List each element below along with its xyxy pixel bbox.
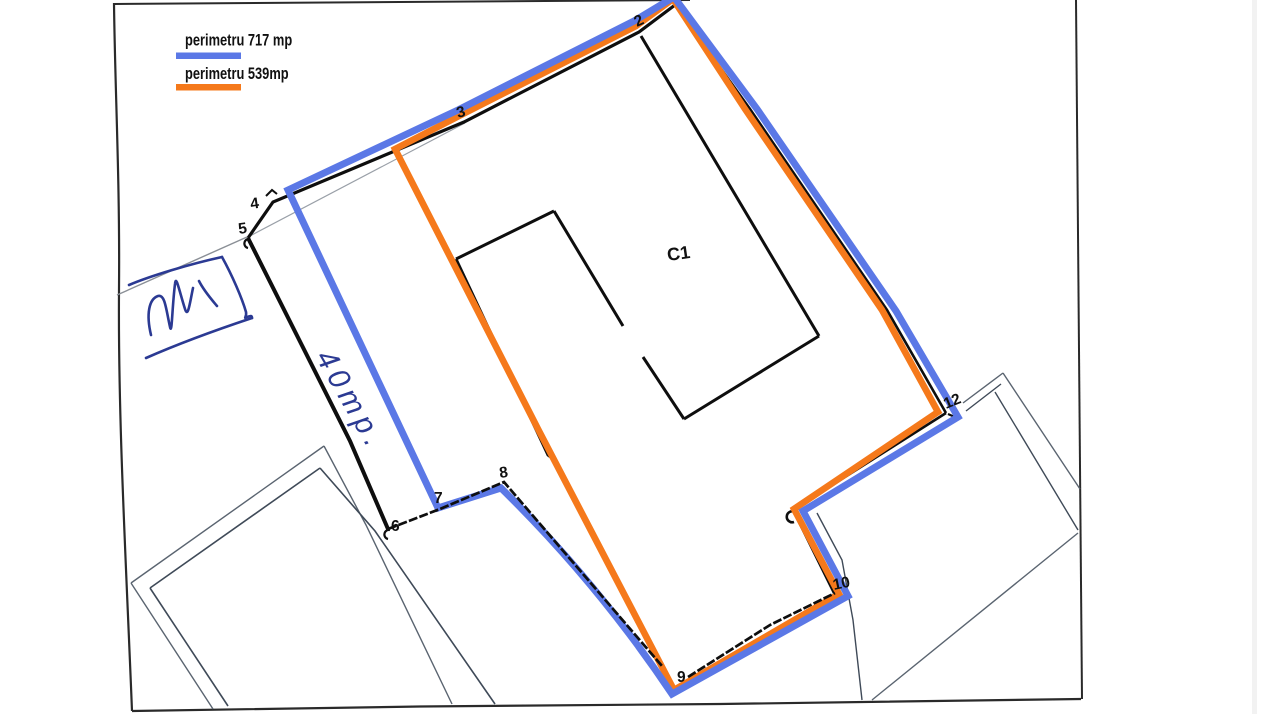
svg-text:perimetru 717 mp: perimetru 717 mp [185,32,292,50]
svg-text:C1: C1 [666,242,692,265]
svg-text:7: 7 [434,490,443,507]
svg-text:6: 6 [391,518,400,535]
svg-text:9: 9 [677,669,686,686]
svg-text:perimetru 539mp: perimetru 539mp [185,66,289,84]
svg-text:10: 10 [831,574,851,594]
